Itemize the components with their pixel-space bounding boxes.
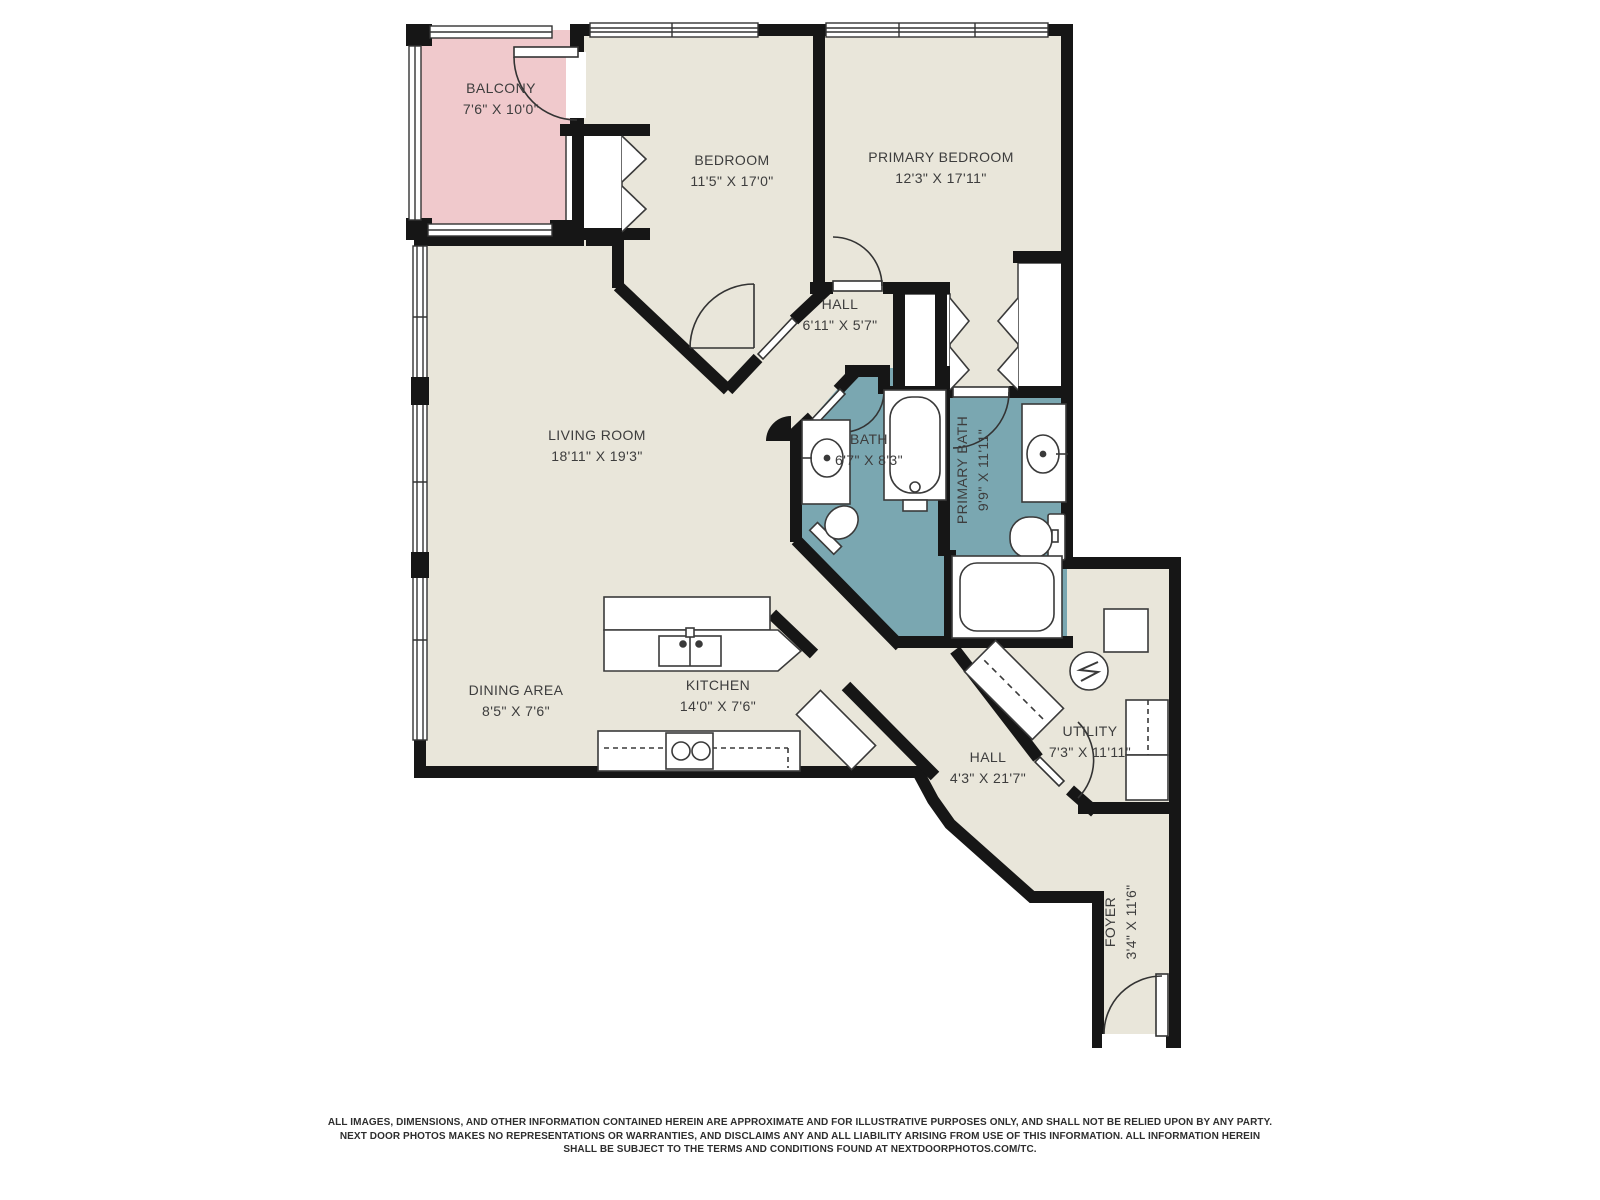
room-name: FOYER <box>1100 884 1121 959</box>
washer-dryer-icon <box>1126 700 1168 800</box>
disclaimer: ALL IMAGES, DIMENSIONS, AND OTHER INFORM… <box>0 1116 1600 1157</box>
room-label-dining-area: DINING AREA 8'5" X 7'6" <box>469 680 564 722</box>
room-dims: 4'3" X 21'7" <box>950 768 1026 789</box>
room-dims: 6'11" X 5'7" <box>802 315 877 336</box>
room-dims: 12'3" X 17'11" <box>868 168 1014 189</box>
room-name: PRIMARY BEDROOM <box>868 147 1014 168</box>
floor-plan-page: BALCONY 7'6" X 10'0" BEDROOM 11'5" X 17'… <box>0 0 1600 1200</box>
shower-icon <box>952 556 1062 638</box>
room-name: HALL <box>950 747 1026 768</box>
room-name: LIVING ROOM <box>548 425 646 446</box>
room-dims: 9'9" X 11'11" <box>973 416 994 524</box>
room-label-utility: UTILITY 7'3" X 11'11" <box>1049 721 1131 763</box>
room-label-primary-bedroom: PRIMARY BEDROOM 12'3" X 17'11" <box>868 147 1014 189</box>
room-dims: 11'5" X 17'0" <box>690 171 773 192</box>
room-dims: 8'5" X 7'6" <box>469 701 564 722</box>
room-dims: 7'3" X 11'11" <box>1049 742 1131 763</box>
room-name: BATH <box>835 429 903 450</box>
room-dims: 3'4" X 11'6" <box>1121 884 1142 959</box>
window-icon <box>590 23 758 37</box>
room-label-bedroom: BEDROOM 11'5" X 17'0" <box>690 150 773 192</box>
room-dims: 18'11" X 19'3" <box>548 446 646 467</box>
kitchen-counter <box>598 731 800 771</box>
room-dims: 6'7" X 8'3" <box>835 450 903 471</box>
room-label-foyer: FOYER 3'4" X 11'6" <box>1100 884 1142 959</box>
room-label-kitchen: KITCHEN 14'0" X 7'6" <box>680 675 756 717</box>
room-name: DINING AREA <box>469 680 564 701</box>
sink-icon <box>1022 404 1068 502</box>
cooktop-icon <box>666 733 713 769</box>
room-name: BEDROOM <box>690 150 773 171</box>
window-icon <box>413 246 427 740</box>
disclaimer-line-3: SHALL BE SUBJECT TO THE TERMS AND CONDIT… <box>0 1143 1600 1157</box>
room-name: UTILITY <box>1049 721 1131 742</box>
room-label-balcony: BALCONY 7'6" X 10'0" <box>463 78 539 120</box>
room-dims: 7'6" X 10'0" <box>463 99 539 120</box>
water-heater-icon <box>1070 652 1108 690</box>
room-name: BALCONY <box>463 78 539 99</box>
disclaimer-line-2: NEXT DOOR PHOTOS MAKES NO REPRESENTATION… <box>0 1130 1600 1144</box>
room-name: HALL <box>802 294 877 315</box>
room-label-hall-upper: HALL 6'11" X 5'7" <box>802 294 877 336</box>
balcony-floor <box>415 30 578 240</box>
disclaimer-line-1: ALL IMAGES, DIMENSIONS, AND OTHER INFORM… <box>0 1116 1600 1130</box>
room-label-hall-lower: HALL 4'3" X 21'7" <box>950 747 1026 789</box>
room-name: PRIMARY BATH <box>952 416 973 524</box>
room-label-primary-bath: PRIMARY BATH 9'9" X 11'11" <box>952 416 994 524</box>
utility-cabinet <box>1104 609 1148 652</box>
room-label-bath: BATH 6'7" X 8'3" <box>835 429 903 471</box>
toilet-icon <box>1010 514 1065 560</box>
floor-plan-drawing <box>0 0 1600 1200</box>
room-label-living-room: LIVING ROOM 18'11" X 19'3" <box>548 425 646 467</box>
room-dims: 14'0" X 7'6" <box>680 696 756 717</box>
primary-closet <box>1018 263 1063 388</box>
room-name: KITCHEN <box>680 675 756 696</box>
window-icon <box>826 23 1048 37</box>
